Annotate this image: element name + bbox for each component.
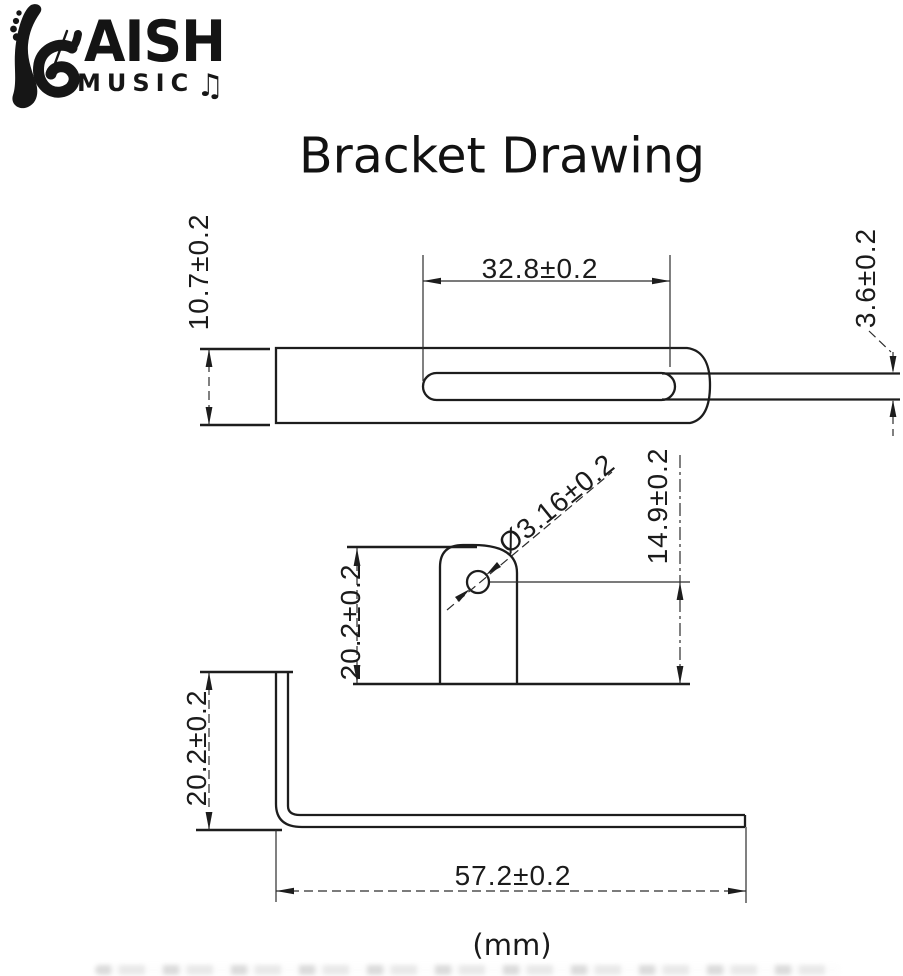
page: AISH MUSIC♫ Bracket Drawing [0, 0, 903, 976]
dim-base-length: 57.2±0.2 [455, 860, 572, 892]
scan-artifact [95, 965, 840, 975]
bracket-drawing [0, 0, 903, 976]
dim-hole-center-to-base: 14.9±0.2 [642, 448, 674, 565]
units-label: (mm) [472, 928, 551, 962]
dim-tab-height: 20.2±0.2 [335, 564, 367, 681]
dim-slot-length: 32.8±0.2 [482, 253, 599, 285]
dim-top-height: 10.7±0.2 [183, 214, 215, 331]
dim-leg-height: 20.2±0.2 [181, 690, 213, 807]
dim-slot-width: 3.6±0.2 [850, 228, 882, 328]
front-view [347, 455, 690, 684]
